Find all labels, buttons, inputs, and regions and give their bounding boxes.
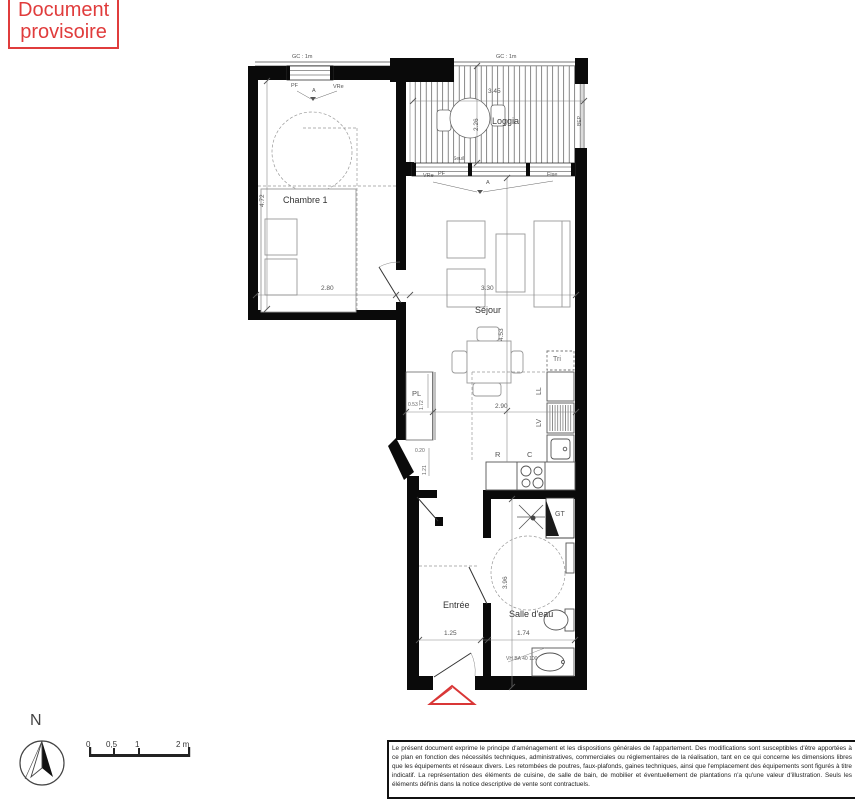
- shower-icon: [517, 505, 545, 529]
- room-label-salle-eau: Salle d'eau: [509, 610, 553, 619]
- room-label-loggia: Loggia: [492, 117, 519, 126]
- room-label-chambre: Chambre 1: [283, 196, 328, 205]
- dim-chambre-height: 4.72: [260, 194, 267, 207]
- label-refrigerateur: R: [495, 451, 500, 459]
- tag-sejour-pf: PF: [438, 172, 445, 178]
- provisional-document-banner: Document provisoire: [8, 0, 119, 49]
- north-label: N: [30, 712, 42, 730]
- dim-cuisine-width: 2.90: [495, 404, 508, 411]
- dim-salle-eau-height: 3.96: [503, 576, 510, 589]
- label-gaine-technique: GT: [555, 511, 565, 518]
- dim-entree-width: 1.25: [444, 631, 457, 638]
- room-label-sejour: Séjour: [475, 306, 501, 315]
- label-seuil: Seuil: [453, 157, 464, 162]
- label-loggia-rail: BEP: [578, 116, 583, 126]
- legal-disclaimer: Le présent document exprime le principe …: [387, 740, 855, 799]
- room-label-entree: Entrée: [443, 601, 470, 610]
- label-cuisson: C: [527, 451, 532, 459]
- dim-salle-eau-width: 1.74: [517, 631, 530, 638]
- label-lave-linge: LL: [536, 387, 543, 395]
- tag-sejour-fixe: Fixe: [547, 173, 557, 179]
- label-placard: PL: [412, 390, 421, 398]
- scale-tick-1: 1: [135, 740, 139, 749]
- scale-tick-2m: 2 m: [176, 740, 189, 749]
- tag-chambre-pf: PF: [291, 84, 298, 90]
- dim-hall-width: 0.20: [415, 449, 425, 454]
- bed: [261, 189, 356, 312]
- scale-tick-05: 0,5: [106, 740, 117, 749]
- tag-chambre-axis: A: [312, 89, 316, 95]
- banner-line2: provisoire: [18, 22, 109, 44]
- tag-gc-left: GC : 1m: [290, 55, 314, 61]
- north-arrow-icon: [20, 741, 64, 785]
- label-tri: Tri: [553, 356, 561, 363]
- tag-sejour-axis: A: [486, 181, 490, 187]
- floor-plan-page: Document provisoire Chambre 1 Loggia Séj…: [0, 0, 855, 800]
- tag-gc-right: GC : 1m: [494, 55, 518, 61]
- floor-plan-drawing: [0, 0, 855, 800]
- tag-chambre-vr: VRe: [333, 85, 344, 91]
- dim-hall-height: 1.21: [423, 465, 428, 475]
- banner-line1: Document: [18, 0, 109, 22]
- tag-sejour-vr: VRe: [423, 174, 434, 180]
- dim-chambre-width: 2.80: [321, 286, 334, 293]
- dim-loggia-height: 2.26: [474, 118, 481, 131]
- tag-vmc: VH BA 40 100: [506, 657, 537, 662]
- dim-sejour-height: 4.53: [499, 328, 506, 341]
- dim-pl-width: 0.53: [408, 403, 418, 408]
- label-lave-vaisselle: LV: [536, 419, 543, 427]
- scale-tick-0: 0: [86, 740, 90, 749]
- entree-doors: [417, 497, 475, 677]
- dim-loggia-width: 3.45: [488, 89, 501, 96]
- entrance-arrow-icon: [430, 686, 474, 704]
- dim-pl-height: 1.72: [420, 400, 425, 410]
- dim-sejour-width: 3.30: [481, 286, 494, 293]
